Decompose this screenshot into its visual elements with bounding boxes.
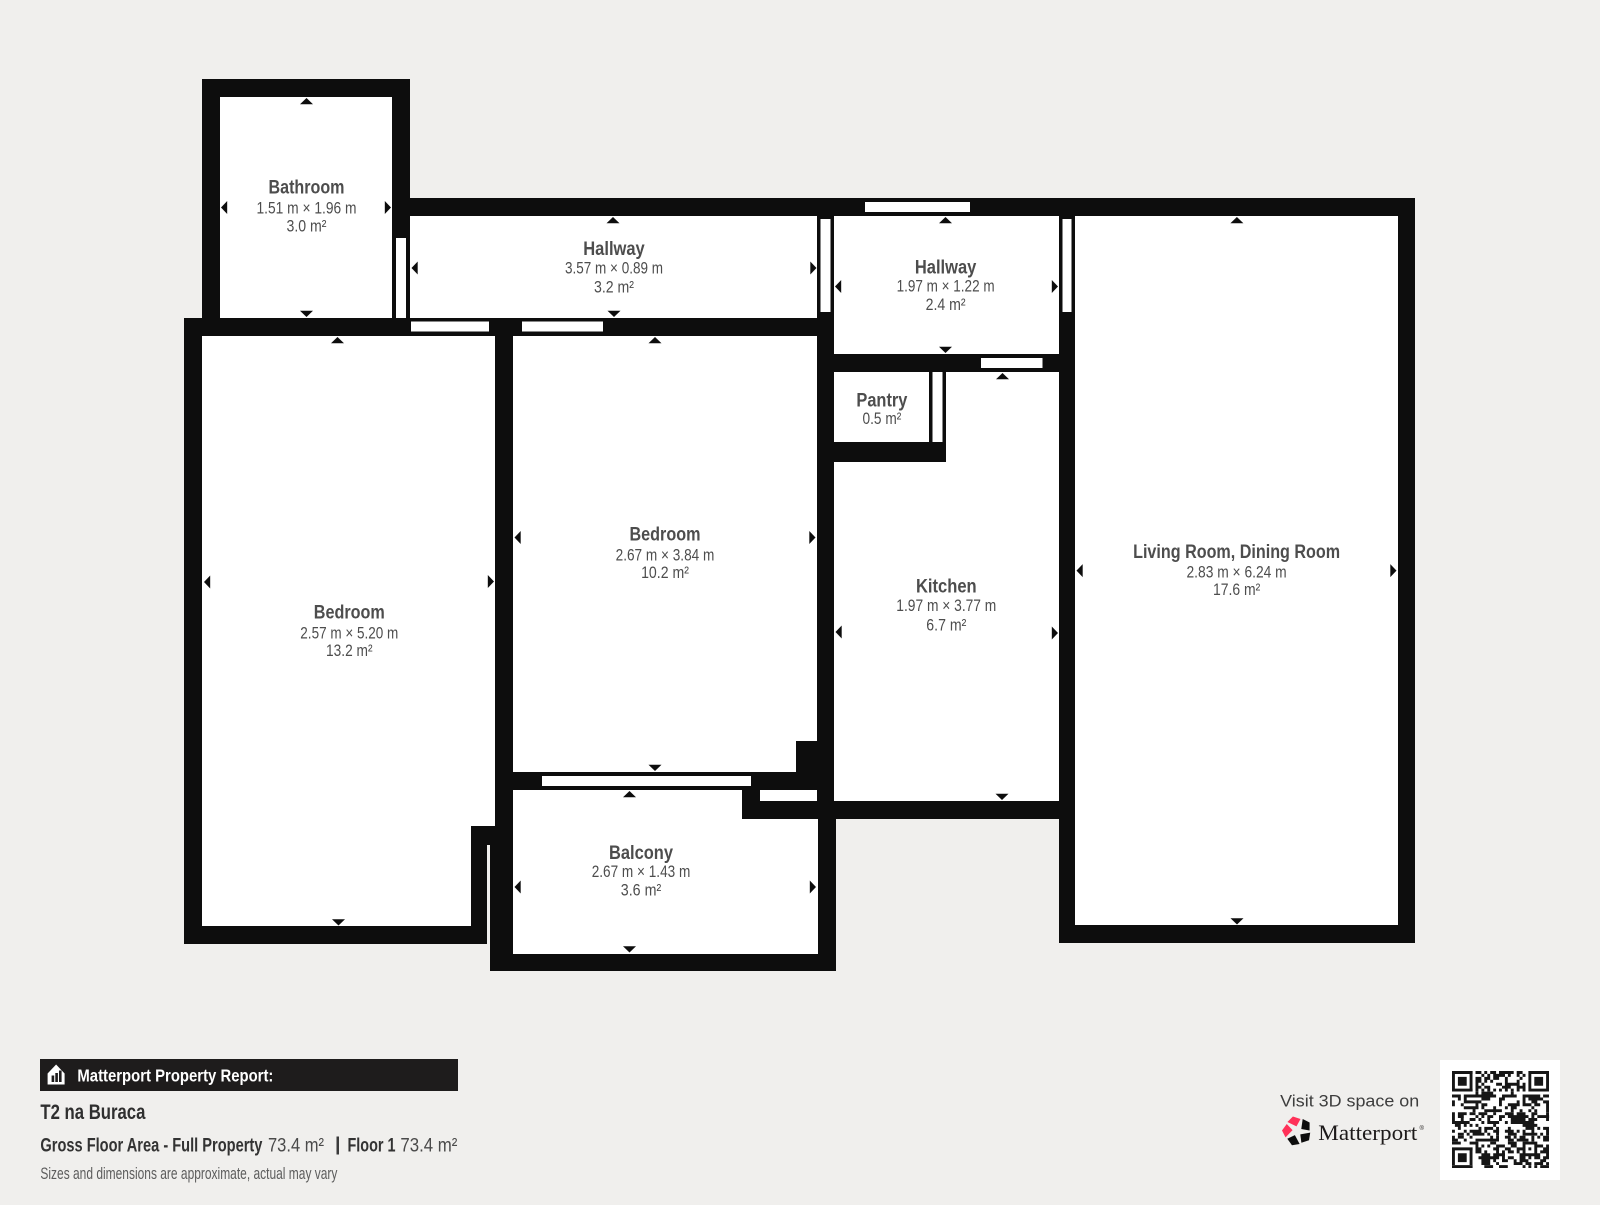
svg-text:Matterport Property Report:: Matterport Property Report: (77, 1066, 273, 1086)
svg-text:3.2 m²: 3.2 m² (594, 278, 634, 297)
svg-text:Bathroom: Bathroom (269, 177, 345, 199)
svg-text:10.2 m²: 10.2 m² (641, 563, 689, 582)
svg-text:Kitchen: Kitchen (916, 576, 977, 598)
svg-text:2.57 m × 5.20 m: 2.57 m × 5.20 m (300, 623, 398, 642)
svg-text:1.51 m × 1.96 m: 1.51 m × 1.96 m (257, 199, 357, 218)
svg-text:2.83 m × 6.24 m: 2.83 m × 6.24 m (1187, 562, 1287, 581)
svg-text:Sizes and dimensions are appro: Sizes and dimensions are approximate, ac… (40, 1165, 338, 1183)
svg-text:Gross Floor Area - Full Proper: Gross Floor Area - Full Property73.4 m² (40, 1135, 324, 1157)
svg-text:17.6 m²: 17.6 m² (1213, 580, 1261, 599)
svg-text:1.97 m × 1.22 m: 1.97 m × 1.22 m (897, 277, 995, 296)
svg-text:3.0 m²: 3.0 m² (287, 217, 327, 236)
svg-text:Hallway: Hallway (915, 256, 977, 278)
svg-text:T2 na Buraca: T2 na Buraca (40, 1100, 146, 1124)
svg-text:Bedroom: Bedroom (630, 524, 701, 546)
svg-text:Visit 3D space on: Visit 3D space on (1280, 1091, 1419, 1110)
svg-text:Floor 173.4 m²: Floor 173.4 m² (348, 1135, 458, 1157)
svg-text:1.97 m × 3.77 m: 1.97 m × 3.77 m (896, 596, 996, 615)
svg-text:3.57 m × 0.89 m: 3.57 m × 0.89 m (565, 259, 663, 278)
svg-text:13.2 m²: 13.2 m² (326, 641, 373, 660)
svg-text:6.7 m²: 6.7 m² (926, 616, 966, 635)
svg-text:Matterport: Matterport (1318, 1120, 1418, 1145)
svg-text:2.67 m × 1.43 m: 2.67 m × 1.43 m (592, 862, 691, 881)
svg-text:Hallway: Hallway (583, 238, 645, 260)
svg-text:Bedroom: Bedroom (314, 601, 385, 623)
svg-text:Balcony: Balcony (609, 842, 673, 864)
svg-text:®: ® (1420, 1125, 1425, 1132)
svg-text:2.4 m²: 2.4 m² (926, 295, 966, 314)
svg-text:0.5 m²: 0.5 m² (863, 409, 902, 428)
svg-text:Living Room, Dining Room: Living Room, Dining Room (1133, 541, 1340, 563)
svg-text:2.67 m × 3.84 m: 2.67 m × 3.84 m (616, 546, 715, 565)
svg-text:3.6 m²: 3.6 m² (621, 881, 662, 900)
